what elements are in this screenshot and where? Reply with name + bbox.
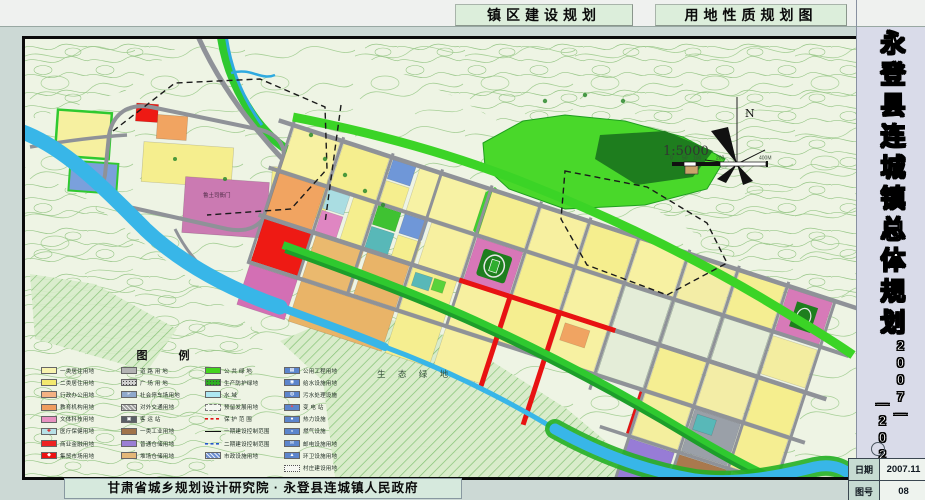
sheet-title-right: 用地性质规划图 xyxy=(655,4,847,26)
sidebar: 永登县连城镇总体规划 2007— —2020 xyxy=(856,0,925,500)
plan-period-start: 2007— xyxy=(893,338,908,423)
sheet-number-label: 图号 xyxy=(849,481,879,500)
date-label: 日期 xyxy=(849,459,879,480)
scale-bar-label: 100 xyxy=(693,156,702,162)
plan-title-vertical: 永登县连城镇总体规划 xyxy=(873,30,909,340)
seal-circle-icon xyxy=(871,442,885,456)
sheet-title-left: 镇区建设规划 xyxy=(455,4,633,26)
date-value: 2007.11 xyxy=(880,459,925,480)
scale-bar-label: 400M xyxy=(759,156,772,162)
map-canvas: N 1:5000 050100200400M 生 态 绿 地 鲁土司衙门 xyxy=(25,39,856,477)
eco-area-label: 生 态 绿 地 xyxy=(377,369,453,379)
map-area: N 1:5000 050100200400M 生 态 绿 地 鲁土司衙门 图 xyxy=(22,36,859,480)
header-strip: 镇区建设规划 用地性质规划图 xyxy=(0,0,925,27)
scale-bar-label: 0 xyxy=(670,156,673,162)
scale-bar-label: 50 xyxy=(682,156,688,162)
north-label: N xyxy=(745,107,755,120)
sheet-info-table: 日期 2007.11 图号 08 xyxy=(848,458,925,500)
scale-bar xyxy=(672,161,768,167)
credit-bar: 甘肃省城乡规划设计研究院 · 永登县连城镇人民政府 xyxy=(64,478,462,499)
planning-sheet: 镇区建设规划 用地性质规划图 xyxy=(0,0,925,500)
scale-bar-label: 200 xyxy=(716,156,725,162)
sheet-number-value: 08 xyxy=(880,481,925,500)
historic-site-label: 鲁土司衙门 xyxy=(203,191,231,199)
sidebar-strip-cap xyxy=(857,0,925,27)
